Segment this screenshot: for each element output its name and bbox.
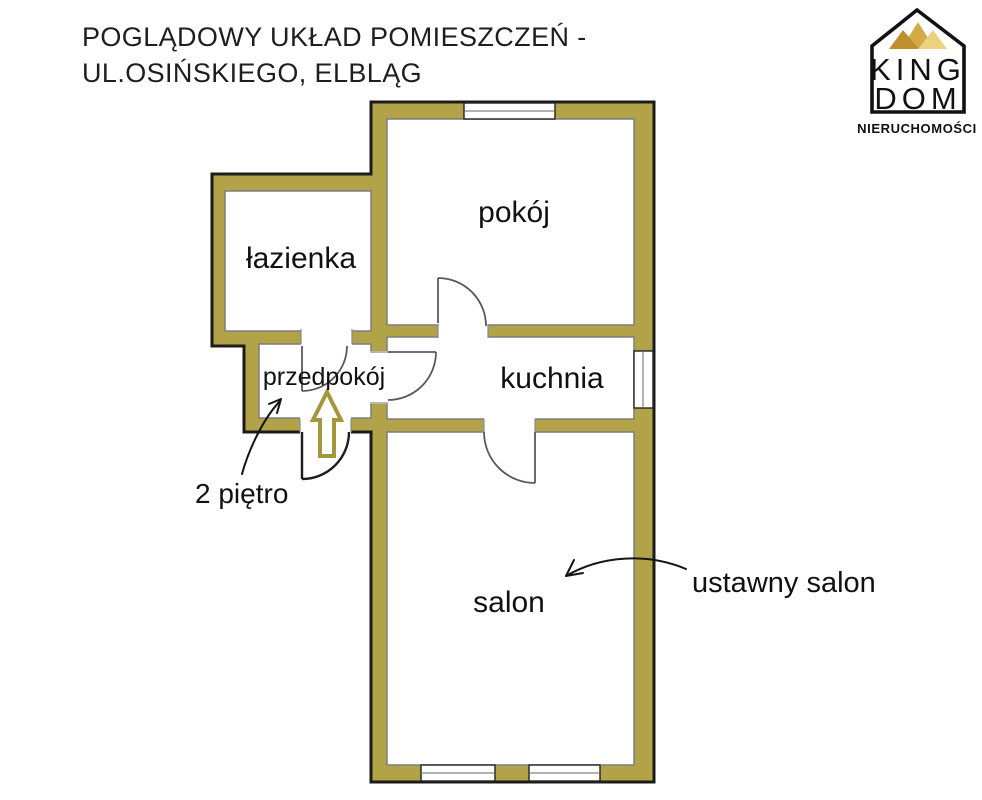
label-pokoj: pokój bbox=[478, 196, 550, 229]
label-salon: salon bbox=[473, 586, 545, 619]
label-lazienka: łazienka bbox=[246, 242, 356, 275]
window-salon-right bbox=[529, 765, 600, 781]
window-pokoj bbox=[464, 103, 555, 119]
label-przedpokoj: przedpokój bbox=[263, 363, 385, 391]
note-salon: ustawny salon bbox=[692, 567, 876, 599]
page: { "title": { "line1": "POGLĄDOWY UKŁAD P… bbox=[0, 0, 982, 800]
doorway-lazienka bbox=[301, 328, 352, 345]
doorway-pokoj bbox=[438, 322, 488, 339]
floor-plan: łazienka pokój przedpokój kuchnia salon … bbox=[0, 0, 982, 800]
window-kuchnia bbox=[634, 351, 653, 408]
label-kuchnia: kuchnia bbox=[500, 362, 604, 395]
note-floor: 2 piętro bbox=[195, 478, 288, 509]
doorway-kuchnia-salon bbox=[484, 417, 535, 434]
window-salon-left bbox=[421, 765, 495, 781]
